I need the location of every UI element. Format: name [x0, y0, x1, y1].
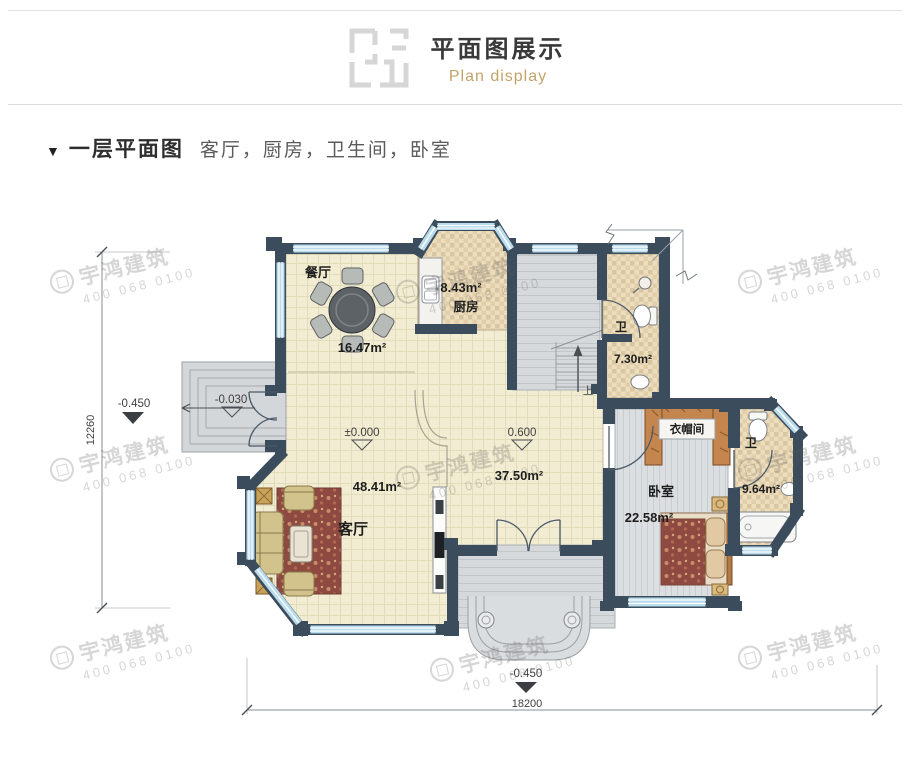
- window: [293, 244, 389, 253]
- armchair: [284, 572, 314, 596]
- bathroom2-area: 9.64m²: [742, 482, 780, 496]
- section-title: 一层平面图: [69, 133, 184, 163]
- window: [628, 597, 706, 607]
- floor-plan: 餐厅 16.47m² 8.43m² 厨房 卫 7.30m² 48.41m² 客厅…: [0, 0, 910, 772]
- section-heading: ▼ 一层平面图 客厅，厨房，卫生间，卧室: [46, 133, 452, 163]
- window: [246, 490, 255, 560]
- window: [310, 625, 436, 634]
- page-title: 平面图展示: [431, 29, 566, 64]
- porch-column: [564, 612, 580, 628]
- elevation-living: ±0.000: [344, 427, 379, 439]
- page-subtitle: Plan display: [449, 68, 547, 86]
- plan-icon: [345, 26, 413, 90]
- elevation-hall: 0.600: [508, 427, 537, 439]
- porch-column: [478, 612, 494, 628]
- living-area: 48.41m²: [353, 479, 402, 494]
- elevation-west-porch: -0.030: [215, 394, 248, 406]
- bathroom1-label: 卫: [615, 320, 627, 334]
- kitchen-area: 8.43m²: [440, 280, 482, 295]
- elevation-south: -0.450: [510, 668, 543, 680]
- dimension-width: 18200: [512, 698, 543, 710]
- dining-area: 16.47m²: [338, 340, 387, 355]
- elevation-west-outside: -0.450: [118, 398, 151, 410]
- sink: [631, 375, 649, 389]
- window: [612, 244, 648, 253]
- pillow: [706, 550, 725, 578]
- bathroom2-label: 卫: [745, 436, 757, 450]
- page: { "header": { "title": "平面图展示", "subtitl…: [0, 0, 910, 772]
- cloakroom-label: 衣帽间: [670, 422, 705, 436]
- window: [742, 546, 772, 555]
- hall-area: 37.50m²: [495, 468, 544, 483]
- south-entry-steps: [468, 596, 590, 660]
- section-room-list: 客厅，厨房，卫生间，卧室: [200, 135, 452, 162]
- window: [276, 262, 285, 338]
- tv: [435, 532, 445, 558]
- bedroom-label: 卧室: [648, 484, 674, 499]
- page-header: 平面图展示 Plan display: [8, 10, 902, 105]
- stairs-up-label: 上: [583, 385, 594, 397]
- triangle-marker-icon: ▼: [46, 143, 60, 159]
- bathroom1-area: 7.30m²: [614, 352, 652, 366]
- bathroom1-floor: [603, 254, 659, 398]
- shower-icon: [639, 277, 651, 289]
- living-label: 客厅: [337, 520, 368, 538]
- bedroom-area: 22.58m²: [625, 510, 674, 525]
- nightstand: [712, 497, 728, 511]
- armchair: [284, 486, 314, 510]
- kitchen-label: 厨房: [453, 299, 478, 314]
- dimension-height: 12260: [85, 415, 97, 446]
- window: [532, 244, 578, 253]
- dining-label: 餐厅: [304, 265, 331, 280]
- pillow: [706, 518, 725, 546]
- bed-blanket: [661, 519, 705, 585]
- kitchen-counter: [419, 258, 442, 328]
- window: [437, 223, 495, 231]
